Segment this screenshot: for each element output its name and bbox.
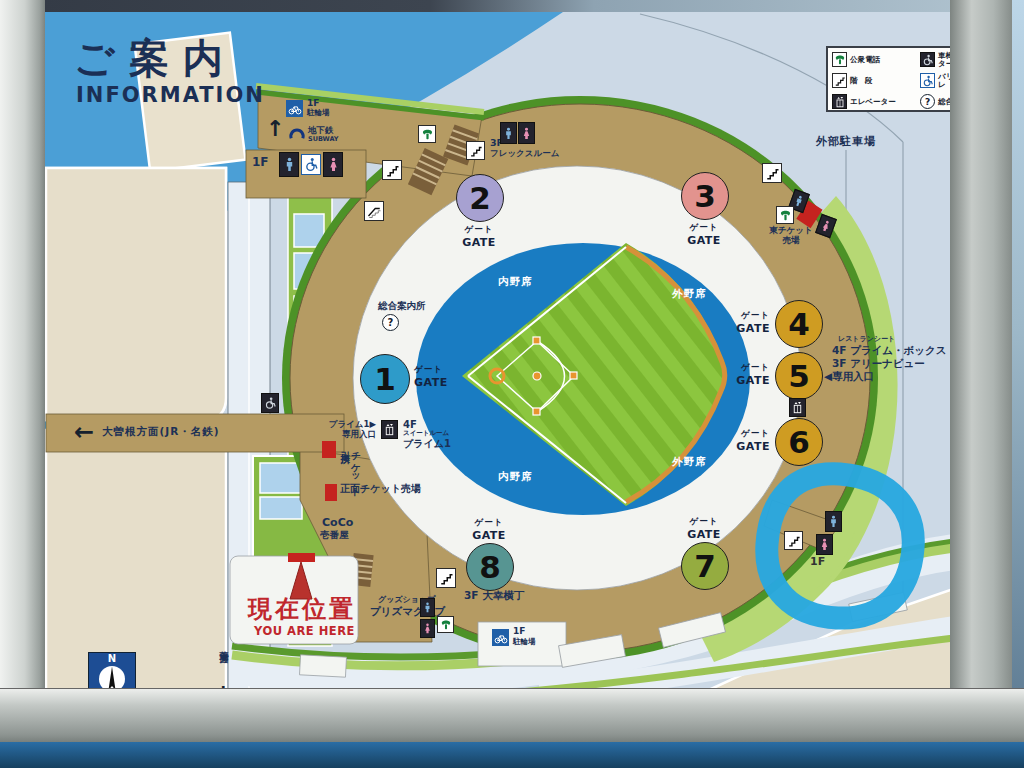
mens-restroom-icon [279, 152, 299, 177]
frame-bottom [0, 688, 1024, 743]
gate-7-label: ゲートGATE [677, 516, 731, 541]
stairs-icon-highlight [784, 531, 803, 550]
infield-seats-label-bottom: 内野席 [498, 471, 533, 483]
phone-icon-east [776, 206, 794, 224]
map-base [0, 0, 1024, 768]
gate-2-label: ゲートGATE [452, 224, 506, 249]
prime1-entrance-line1: プライム1▶ [318, 420, 376, 429]
phone-icon [832, 52, 847, 67]
current-location-label: 現在位置 [248, 596, 356, 622]
phone-icon-south [437, 616, 454, 633]
frame-top [0, 0, 1024, 12]
suite-room-label: スイートルーム [403, 430, 449, 437]
outer-parking-label: 外部駐車場 [816, 136, 876, 148]
mens-restroom-icon-south [420, 598, 435, 617]
suite-name-label: プライム1 [403, 438, 451, 449]
compass-n: N [108, 653, 116, 664]
stairs-icon [832, 73, 847, 88]
stairs-icon-northeast [762, 163, 782, 183]
gate-3-circle: 3 [681, 172, 729, 220]
elevator-icon-gate5 [789, 398, 806, 417]
infield-seats-label-top: 内野席 [498, 276, 533, 288]
womens-restroom-icon-north [518, 122, 535, 144]
subway-arrow: ↑ [266, 116, 284, 141]
prime-box-label: 4F プライム・ボックス [832, 345, 947, 357]
restroom-floor-label: 1F [252, 156, 269, 169]
gate-6-label: ゲートGATE [722, 428, 770, 453]
signboard-photo: ご案内 INFORMATION 公衆電話 車椅子用エレベーター 階 段 バリアフ… [0, 0, 1024, 768]
elevator-icon-prime1 [381, 420, 398, 439]
ozone-direction-label: 大曽根方面(JR・名鉄) [102, 426, 220, 438]
page-title: ご案内 [74, 36, 237, 80]
info-icon: ? [920, 94, 935, 109]
east-ticket-label1: 東チケット [762, 226, 820, 235]
ozone-arrow: ← [74, 418, 94, 446]
gate-7-circle: 7 [681, 542, 729, 590]
frame-left [0, 0, 45, 740]
escalator-icon [364, 201, 384, 221]
stairs-icon-flexroom [466, 141, 485, 160]
accessible-toilet-icon [920, 73, 935, 88]
subway-icon [288, 126, 306, 144]
gate-4-label: ゲートGATE [722, 310, 770, 335]
flexroom-label: フレックスルーム [490, 149, 559, 158]
bike-parking-top-label: 駐輪場 [307, 109, 330, 117]
subway-label-en: SUBWAY [308, 136, 339, 143]
gate-3-label: ゲートGATE [677, 222, 731, 247]
coco-label-1: CoCo [322, 517, 353, 529]
arena-view-label: 3F アリーナビュー [832, 358, 925, 370]
stairs-icon-south [436, 568, 456, 588]
daiko-yokocho-label: 3F 大幸横丁 [464, 590, 524, 602]
info-icon-map: ? [382, 314, 399, 331]
legend-item-stairs: 階 段 [832, 73, 920, 88]
legend-item-phone: 公衆電話 [832, 52, 920, 67]
gate-5-label: ゲートGATE [722, 362, 770, 387]
current-location-label-en: YOU ARE HERE [254, 625, 355, 638]
wheelchair-icon [301, 154, 321, 175]
bike-parking-bottom-floor: 1F [513, 627, 525, 637]
womens-restroom-icon [323, 152, 343, 177]
restaurant-seat-label: レストランシート [838, 336, 895, 344]
prime1-entrance-line2: 専用入口 [318, 430, 376, 439]
gate-4-circle: 4 [775, 300, 823, 348]
stairs-icon-northwest [382, 160, 402, 180]
east-ticket-label2: 売場 [762, 236, 820, 245]
sky-sliver [1012, 0, 1024, 740]
mens-restroom-icon-north [500, 122, 517, 144]
ticket-exchange-label: チケット引換所 [340, 444, 361, 504]
bicycle-icon [286, 100, 303, 117]
legend-item-elevator: エレベーター [832, 94, 920, 109]
gate-8-label: ゲートGATE [462, 517, 516, 542]
bike-parking-bottom-label: 駐輪場 [513, 638, 536, 646]
frame-right [950, 0, 1012, 740]
page-title-en: INFORMATION [76, 84, 265, 107]
wheelchair-elevator-icon [920, 52, 935, 67]
outfield-seats-label-bottom: 外野席 [672, 456, 707, 468]
womens-restroom-icon-south [420, 619, 435, 638]
main-ticket-label: 正面チケット売場 [340, 483, 421, 494]
wheelchair-elevator-icon-map [261, 393, 279, 413]
mens-restroom-icon-highlight [825, 511, 842, 532]
dedicated-entrance-label: ◀専用入口 [824, 371, 874, 383]
coco-label-2: 壱番屋 [320, 530, 349, 540]
highlight-floor-label: 1F [810, 556, 825, 568]
gate-1-label: ゲートGATE [414, 364, 462, 389]
bicycle-icon-south [492, 629, 509, 646]
subway-label-jp: 地下鉄 [308, 126, 334, 135]
gate-5-circle: 5 [775, 352, 823, 400]
gate-2-circle: 2 [456, 174, 504, 222]
phone-icon-north [418, 125, 436, 143]
elevator-icon [832, 94, 847, 109]
gate-8-circle: 8 [466, 543, 514, 591]
photo-background-bottom [0, 742, 1024, 768]
womens-restroom-icon-highlight [816, 534, 833, 555]
outfield-seats-label-top: 外野席 [672, 288, 707, 300]
info-center-label: 総合案内所 [378, 301, 426, 311]
gate-1-circle: 1 [360, 354, 410, 404]
gate-6-circle: 6 [775, 418, 823, 466]
